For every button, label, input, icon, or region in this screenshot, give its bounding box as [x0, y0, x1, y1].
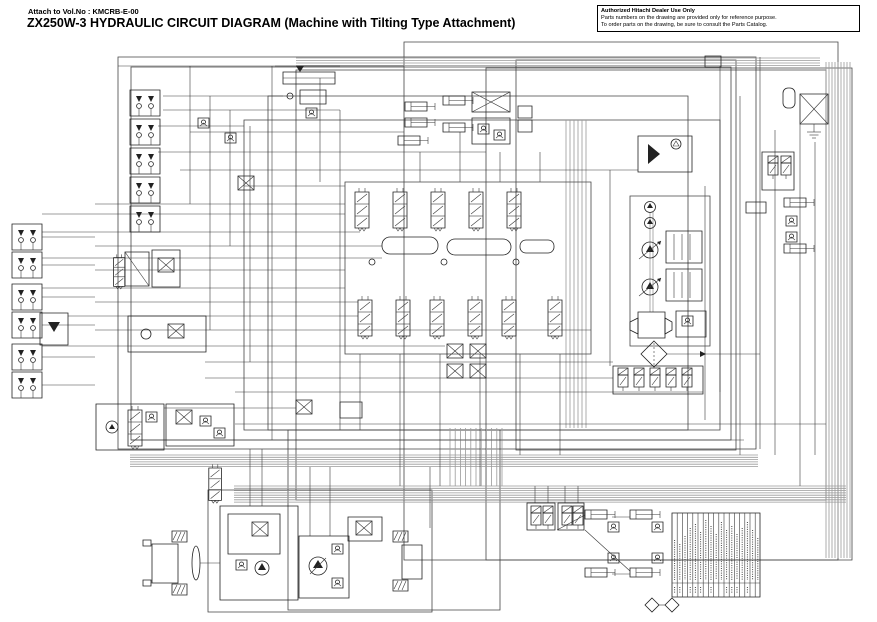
stabilizer-cylinder-icon: [585, 510, 615, 519]
solenoid-manifold: [613, 366, 703, 394]
steering-valve-block: [96, 404, 234, 450]
notice-line-2: Parts numbers on the drawing are provide…: [601, 15, 856, 22]
hose-legend-table: [672, 513, 760, 597]
mid-hose-bus: [130, 455, 758, 467]
hydraulic-circuit-page: Attach to Vol.No : KMCRB-E-00 ZX250W-3 H…: [0, 0, 877, 622]
attach-volume-number: Attach to Vol.No : KMCRB-E-00: [28, 7, 139, 16]
right-pilot-bus: [826, 62, 850, 558]
shuttle-valve-icon: [198, 118, 209, 128]
boom-arm-cylinder-group: [398, 56, 721, 145]
coupler-symbols: [645, 598, 679, 612]
cylinder-icon: [405, 118, 435, 127]
pump-regulator-icon: [666, 231, 702, 263]
engine-icon: [638, 312, 665, 338]
cylinder-icon: [784, 198, 814, 207]
notice-line-1: Authorized Hitachi Dealer Use Only: [601, 8, 856, 15]
cylinder-icon: [784, 244, 814, 253]
cylinder-icon: [405, 102, 435, 111]
stabilizer-cylinder-icon: [630, 510, 660, 519]
stabilizer-group: [527, 503, 663, 577]
transmission-block: [209, 464, 298, 600]
stabilizer-cylinder-icon: [585, 568, 615, 577]
notice-line-3: To order parts on the drawing, be sure t…: [601, 22, 856, 29]
main-control-valve: [345, 182, 591, 354]
cylinder-icon: [443, 96, 473, 105]
rear-axle: [393, 531, 422, 591]
travel-motor-block: [299, 517, 382, 598]
center-vertical-bundle: [566, 120, 586, 428]
pilot-valve-stack: [130, 90, 254, 232]
front-axle: [143, 531, 220, 595]
accumulator-icon: [783, 88, 795, 108]
pilot-filter-icon: [238, 176, 254, 190]
hydraulic-oil-tank: [638, 136, 692, 172]
bottom-hose-bus: [234, 486, 846, 502]
pump-engine-group: [630, 196, 760, 367]
right-pilot-group: [746, 88, 828, 253]
circuit-schematic: [0, 0, 877, 622]
page-title: ZX250W-3 HYDRAULIC CIRCUIT DIAGRAM (Mach…: [27, 16, 515, 30]
dealer-notice-box: Authorized Hitachi Dealer Use Only Parts…: [597, 5, 860, 32]
gear-pump-icon: [645, 202, 656, 213]
cylinder-icon: [443, 123, 473, 132]
oil-filter-icon: [641, 341, 667, 367]
remote-pilot-units: [12, 224, 95, 398]
shuttle-valve-icon: [225, 133, 236, 143]
top-hose-bus: [296, 58, 820, 66]
pump-regulator-icon: [666, 269, 702, 301]
stabilizer-cylinder-icon: [630, 568, 660, 577]
cylinder-icon: [398, 136, 428, 145]
cushion-valve-cluster: [296, 344, 486, 418]
